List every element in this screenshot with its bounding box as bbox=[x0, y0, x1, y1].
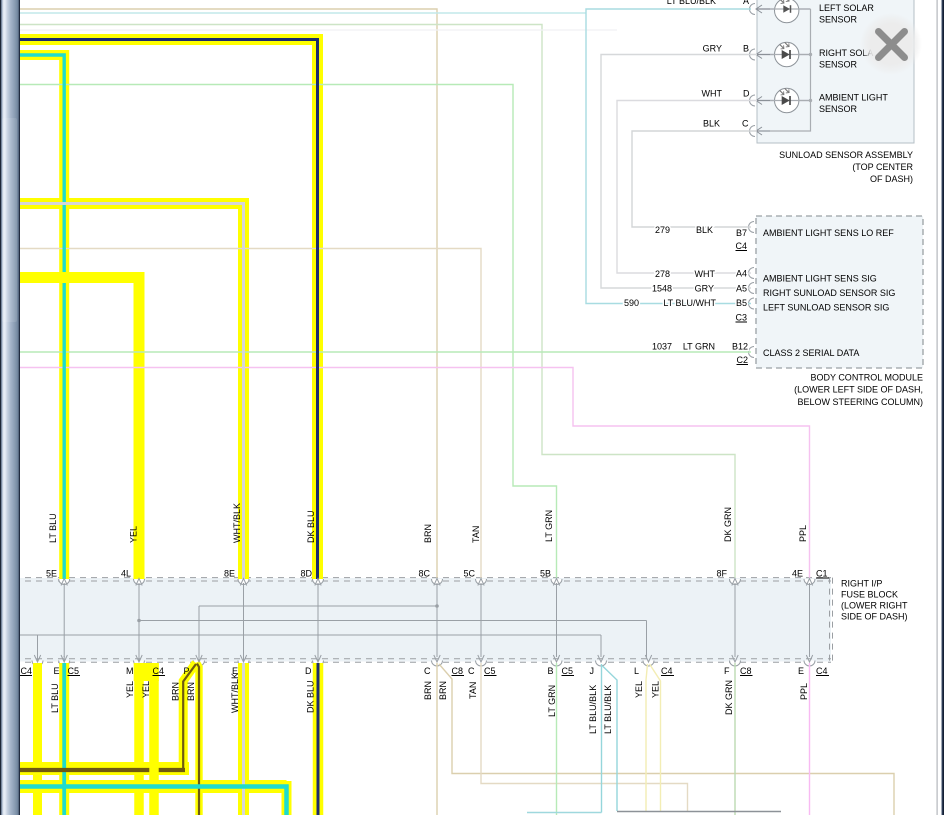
svg-text:LT GRN: LT GRN bbox=[683, 342, 715, 352]
svg-text:C5: C5 bbox=[562, 666, 574, 676]
svg-text:5B: 5B bbox=[540, 569, 551, 579]
svg-text:BRN: BRN bbox=[171, 682, 181, 701]
svg-text:GRY: GRY bbox=[703, 44, 722, 54]
svg-text:8E: 8E bbox=[224, 569, 235, 579]
svg-text:590: 590 bbox=[624, 298, 639, 308]
svg-text:SENSOR: SENSOR bbox=[819, 15, 858, 25]
svg-text:SENSOR: SENSOR bbox=[819, 60, 858, 70]
svg-text:AMBIENT LIGHT: AMBIENT LIGHT bbox=[819, 93, 888, 103]
svg-text:WHT/BLK: WHT/BLK bbox=[232, 503, 242, 543]
svg-text:C4: C4 bbox=[153, 666, 165, 676]
svg-text:BRN: BRN bbox=[423, 524, 433, 543]
svg-text:B7: B7 bbox=[736, 228, 747, 238]
svg-text:C4: C4 bbox=[20, 666, 32, 676]
svg-text:C3: C3 bbox=[735, 313, 747, 323]
svg-text:LT BLU/BLK: LT BLU/BLK bbox=[588, 685, 598, 734]
svg-text:BLK: BLK bbox=[703, 119, 720, 129]
svg-text:GRY: GRY bbox=[695, 284, 714, 294]
svg-text:PPL: PPL bbox=[799, 683, 809, 700]
svg-text:4E: 4E bbox=[792, 569, 803, 579]
svg-text:LT GRN: LT GRN bbox=[547, 685, 557, 717]
svg-text:C2: C2 bbox=[736, 355, 748, 365]
svg-text:BRN: BRN bbox=[186, 682, 196, 701]
svg-text:B12: B12 bbox=[732, 342, 748, 352]
svg-text:P: P bbox=[183, 666, 189, 676]
svg-text:DK BLU: DK BLU bbox=[306, 510, 316, 543]
svg-text:LT BLU: LT BLU bbox=[48, 513, 58, 543]
svg-text:C5: C5 bbox=[68, 666, 80, 676]
svg-text:LT BLU/WHT: LT BLU/WHT bbox=[663, 298, 716, 308]
svg-text:BRN: BRN bbox=[423, 681, 433, 700]
svg-text:BRN: BRN bbox=[438, 681, 448, 700]
svg-text:C: C bbox=[742, 119, 749, 129]
svg-text:DK GRN: DK GRN bbox=[724, 680, 734, 715]
svg-text:CLASS 2 SERIAL DATA: CLASS 2 SERIAL DATA bbox=[763, 348, 859, 358]
svg-text:L: L bbox=[634, 666, 639, 676]
svg-text:F: F bbox=[724, 666, 730, 676]
svg-text:C1: C1 bbox=[816, 569, 828, 579]
svg-text:D: D bbox=[305, 666, 312, 676]
svg-text:LEFT SUNLOAD SENSOR SIG: LEFT SUNLOAD SENSOR SIG bbox=[763, 303, 889, 313]
svg-text:TAN: TAN bbox=[468, 682, 478, 699]
svg-text:C5: C5 bbox=[484, 666, 496, 676]
svg-text:C4: C4 bbox=[735, 241, 747, 251]
svg-text:C8: C8 bbox=[452, 666, 464, 676]
svg-text:A5: A5 bbox=[736, 284, 747, 294]
svg-text:1548: 1548 bbox=[652, 284, 672, 294]
svg-text:LT GRN: LT GRN bbox=[544, 510, 554, 542]
svg-text:WHT: WHT bbox=[702, 89, 723, 99]
svg-text:LT BLU/BLK: LT BLU/BLK bbox=[667, 0, 716, 6]
svg-text:(LOWER RIGHT: (LOWER RIGHT bbox=[841, 601, 908, 611]
svg-text:BELOW STEERING COLUMN): BELOW STEERING COLUMN) bbox=[797, 397, 923, 407]
svg-text:1037: 1037 bbox=[652, 342, 672, 352]
svg-text:SIDE OF DASH): SIDE OF DASH) bbox=[841, 612, 908, 622]
svg-text:C4: C4 bbox=[816, 666, 828, 676]
svg-text:DK BLU: DK BLU bbox=[306, 680, 316, 713]
svg-text:YEL: YEL bbox=[651, 681, 661, 698]
svg-text:5C: 5C bbox=[463, 569, 475, 579]
svg-text:LEFT SOLAR: LEFT SOLAR bbox=[819, 3, 874, 13]
svg-text:8D: 8D bbox=[300, 569, 312, 579]
svg-text:SUNLOAD SENSOR ASSEMBLY: SUNLOAD SENSOR ASSEMBLY bbox=[779, 150, 913, 160]
svg-text:YEL: YEL bbox=[634, 681, 644, 698]
svg-text:WHT: WHT bbox=[695, 269, 716, 279]
svg-text:4L: 4L bbox=[121, 569, 131, 579]
svg-text:BLK: BLK bbox=[696, 225, 713, 235]
svg-text:LT BLU/BLK: LT BLU/BLK bbox=[603, 685, 613, 734]
svg-text:WHT/BLK: WHT/BLK bbox=[230, 673, 240, 713]
svg-text:SENSOR: SENSOR bbox=[819, 104, 858, 114]
svg-text:C: C bbox=[468, 666, 475, 676]
svg-text:(TOP CENTER: (TOP CENTER bbox=[852, 162, 913, 172]
svg-text:LT BLU: LT BLU bbox=[50, 683, 60, 713]
svg-text:A4: A4 bbox=[736, 269, 747, 279]
svg-text:YEL: YEL bbox=[129, 526, 139, 543]
svg-text:278: 278 bbox=[655, 269, 670, 279]
svg-text:FUSE BLOCK: FUSE BLOCK bbox=[841, 590, 898, 600]
svg-text:M: M bbox=[126, 666, 134, 676]
svg-text:RIGHT SUNLOAD SENSOR SIG: RIGHT SUNLOAD SENSOR SIG bbox=[763, 288, 895, 298]
svg-text:AMBIENT LIGHT SENS LO REF: AMBIENT LIGHT SENS LO REF bbox=[763, 228, 894, 238]
svg-text:279: 279 bbox=[655, 225, 670, 235]
svg-text:C: C bbox=[424, 666, 431, 676]
svg-text:YEL: YEL bbox=[141, 681, 151, 698]
svg-text:B: B bbox=[547, 666, 553, 676]
svg-text:AMBIENT LIGHT SENS SIG: AMBIENT LIGHT SENS SIG bbox=[763, 274, 877, 284]
svg-text:DK GRN: DK GRN bbox=[723, 507, 733, 542]
svg-text:A: A bbox=[743, 0, 749, 6]
svg-text:YEL: YEL bbox=[125, 681, 135, 698]
svg-text:8C: 8C bbox=[418, 569, 430, 579]
svg-text:E: E bbox=[798, 666, 804, 676]
svg-text:TAN: TAN bbox=[471, 526, 481, 543]
svg-text:OF DASH): OF DASH) bbox=[870, 174, 913, 184]
svg-text:PPL: PPL bbox=[798, 525, 808, 542]
svg-text:RIGHT I/P: RIGHT I/P bbox=[841, 579, 882, 589]
svg-text:C4: C4 bbox=[661, 666, 673, 676]
svg-text:C8: C8 bbox=[740, 666, 752, 676]
svg-text:D: D bbox=[743, 89, 750, 99]
svg-text:8F: 8F bbox=[716, 569, 727, 579]
svg-text:5E: 5E bbox=[46, 569, 57, 579]
svg-text:BODY CONTROL MODULE: BODY CONTROL MODULE bbox=[810, 373, 923, 383]
svg-text:B5: B5 bbox=[736, 298, 747, 308]
svg-text:E: E bbox=[53, 666, 59, 676]
svg-text:(LOWER LEFT SIDE OF DASH,: (LOWER LEFT SIDE OF DASH, bbox=[794, 385, 923, 395]
svg-text:B: B bbox=[743, 44, 749, 54]
svg-text:J: J bbox=[590, 666, 595, 676]
